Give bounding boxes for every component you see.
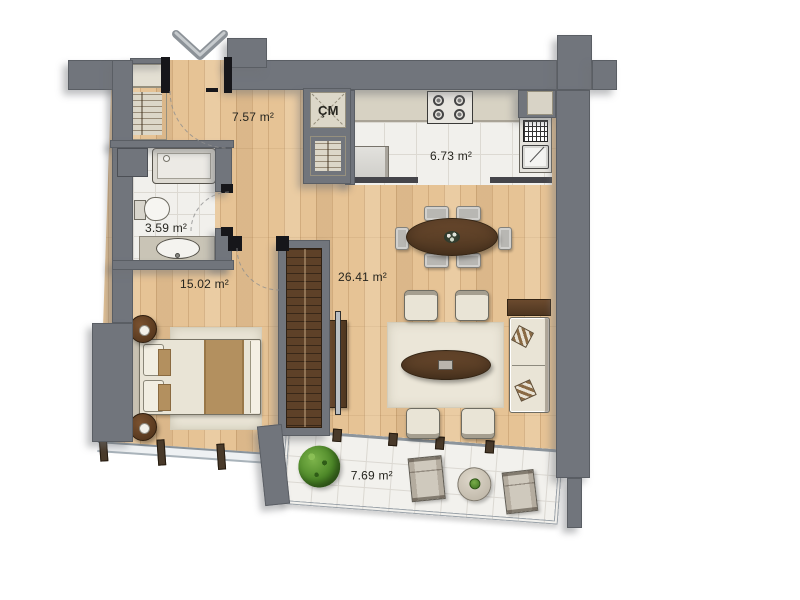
floor-plan-canvas: 7.69 m² (0, 0, 800, 600)
entry-area-label: 7.57 m² (232, 110, 274, 124)
door-swing-arc (170, 91, 227, 148)
door-swing-arc (237, 248, 279, 290)
door-swing-arc (191, 192, 230, 231)
sink-arrow (530, 147, 544, 162)
bathroom-area-label: 3.59 m² (145, 221, 187, 235)
door-swing-arcs (0, 0, 800, 600)
bedroom-area-label: 15.02 m² (180, 277, 229, 291)
kitchen-area-label: 6.73 m² (430, 149, 472, 163)
living-area-label: 26.41 m² (338, 270, 387, 284)
